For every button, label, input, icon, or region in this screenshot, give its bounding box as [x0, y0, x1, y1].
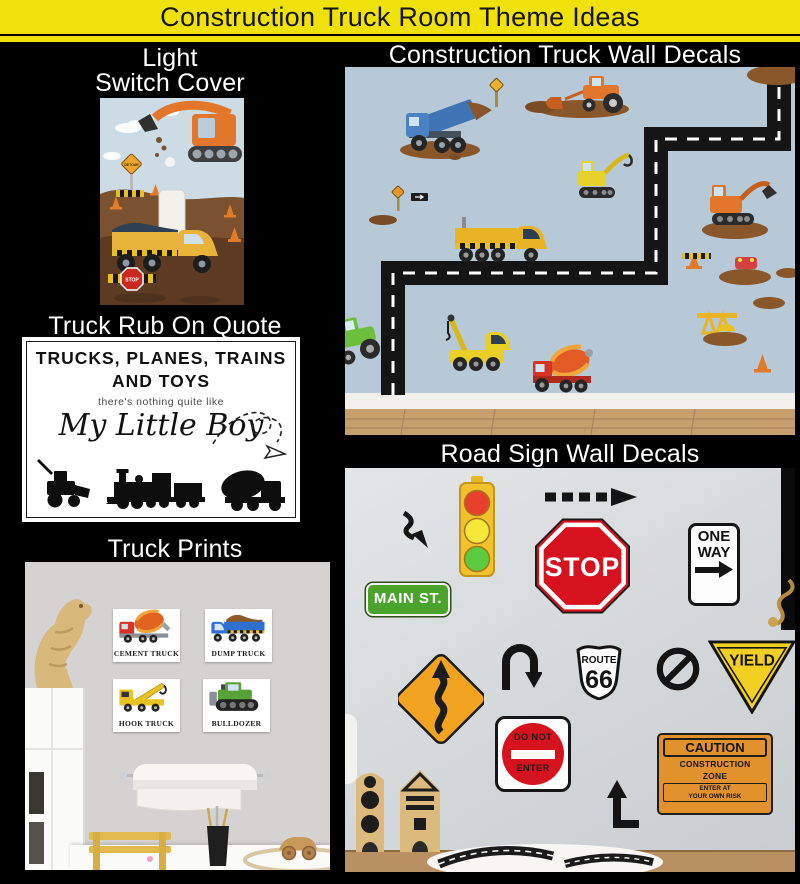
- u-turn-arrow-decal: [498, 640, 542, 690]
- light-switch-label: Light Switch Cover: [60, 46, 280, 96]
- truck-prints-label: Truck Prints: [35, 535, 315, 564]
- svg-text:DETOUR: DETOUR: [124, 163, 139, 167]
- truck-silhouettes: [31, 457, 291, 513]
- pencil-cup: [201, 806, 235, 868]
- wall-decals-illustration: [345, 67, 795, 435]
- road-play-rug: [425, 840, 665, 872]
- main-st-sign: MAIN ST.: [366, 583, 450, 616]
- stop-sign: STOP: [535, 512, 630, 620]
- bulldozer-art: [207, 679, 267, 713]
- print-bulldozer: BULLDOZER: [203, 679, 270, 732]
- quote-line-1: TRUCKS, PLANES, TRAINS: [27, 348, 295, 369]
- left-turn-arrow-decal: [603, 778, 639, 828]
- yield-sign: YIELD: [708, 640, 795, 714]
- truck-prints-photo: CEMENT TRUCK DUMP TRUCK: [25, 562, 330, 870]
- svg-text:STOP: STOP: [545, 552, 620, 582]
- chair: [87, 830, 177, 870]
- wooden-toy-car: [275, 832, 323, 862]
- zigzag-arrow-decal: [398, 510, 436, 554]
- one-way-sign: ONE WAY: [688, 523, 740, 606]
- gold-wall-hook: [763, 576, 795, 628]
- quote-rub-on-decal: TRUCKS, PLANES, TRAINS AND TOYS there's …: [22, 337, 300, 522]
- do-not-enter-sign: DO NOT ENTER: [495, 716, 571, 792]
- svg-text:YIELD: YIELD: [729, 652, 775, 669]
- print-label: BULLDOZER: [203, 719, 270, 728]
- print-label: CEMENT TRUCK: [113, 649, 180, 658]
- print-label: DUMP TRUCK: [205, 649, 272, 658]
- bookcase: [25, 688, 85, 870]
- svg-text:66: 66: [585, 666, 613, 694]
- page-title: Construction Truck Room Theme Ideas: [160, 2, 640, 33]
- paper-roll-holder: [117, 762, 273, 818]
- route-66-sign: ROUTE 66: [573, 640, 625, 700]
- caution-sign: CAUTION CONSTRUCTION ZONE ENTER AT YOUR …: [657, 733, 773, 815]
- winding-road-sign: [398, 646, 484, 752]
- light-switch-illustration: DETOUR: [100, 98, 244, 305]
- light-switch-photo: DETOUR: [100, 98, 244, 305]
- print-label: HOOK TRUCK: [113, 719, 180, 728]
- right-arrow-icon: [695, 561, 733, 578]
- print-dump-truck: DUMP TRUCK: [205, 609, 272, 662]
- dinosaur-toy: [25, 572, 95, 697]
- print-hook-truck: HOOK TRUCK: [113, 679, 180, 732]
- road-signs-photo: STOP ONE WAY MAIN ST. ROUTE 66: [345, 468, 795, 872]
- quote-inner-frame: TRUCKS, PLANES, TRAINS AND TOYS there's …: [26, 341, 296, 518]
- traffic-light-decal: [458, 476, 496, 578]
- cement-truck-art: [117, 609, 177, 643]
- no-entry-symbol: [655, 646, 701, 692]
- svg-text:ROUTE: ROUTE: [582, 655, 617, 666]
- chevron-barrier-decal: [116, 190, 144, 197]
- svg-text:STOP: STOP: [125, 278, 139, 284]
- road-signs-label: Road Sign Wall Decals: [340, 440, 800, 469]
- dashed-arrow-decal: [545, 488, 637, 506]
- wall-decals-label: Construction Truck Wall Decals: [335, 41, 795, 70]
- collage-canvas: Construction Truck Room Theme Ideas Ligh…: [0, 0, 800, 884]
- dump-truck-art: [209, 609, 269, 643]
- quote-line-2: AND TOYS: [27, 371, 295, 392]
- wall-decals-photo: [345, 67, 795, 435]
- hook-truck-art: [117, 679, 177, 713]
- print-cement-truck: CEMENT TRUCK: [113, 609, 180, 662]
- title-bar: Construction Truck Room Theme Ideas: [0, 0, 800, 34]
